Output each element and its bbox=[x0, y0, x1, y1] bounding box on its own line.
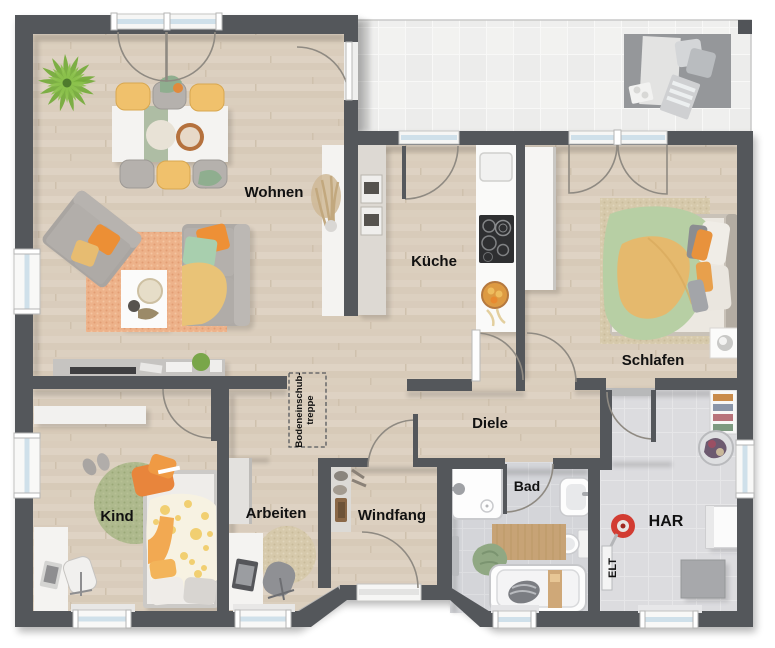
svg-text:HAR: HAR bbox=[649, 513, 684, 530]
svg-text:ELT: ELT bbox=[607, 558, 619, 578]
svg-text:Kind: Kind bbox=[100, 508, 133, 525]
svg-text:treppe: treppe bbox=[305, 395, 316, 424]
svg-text:Schlafen: Schlafen bbox=[622, 352, 685, 369]
svg-text:Wohnen: Wohnen bbox=[245, 184, 304, 201]
svg-text:Küche: Küche bbox=[411, 253, 457, 270]
svg-text:Diele: Diele bbox=[472, 415, 508, 432]
svg-text:Arbeiten: Arbeiten bbox=[246, 505, 307, 522]
svg-text:Windfang: Windfang bbox=[358, 507, 426, 524]
svg-text:Bad: Bad bbox=[514, 478, 540, 494]
svg-text:Bodeneinschub-: Bodeneinschub- bbox=[294, 372, 305, 447]
